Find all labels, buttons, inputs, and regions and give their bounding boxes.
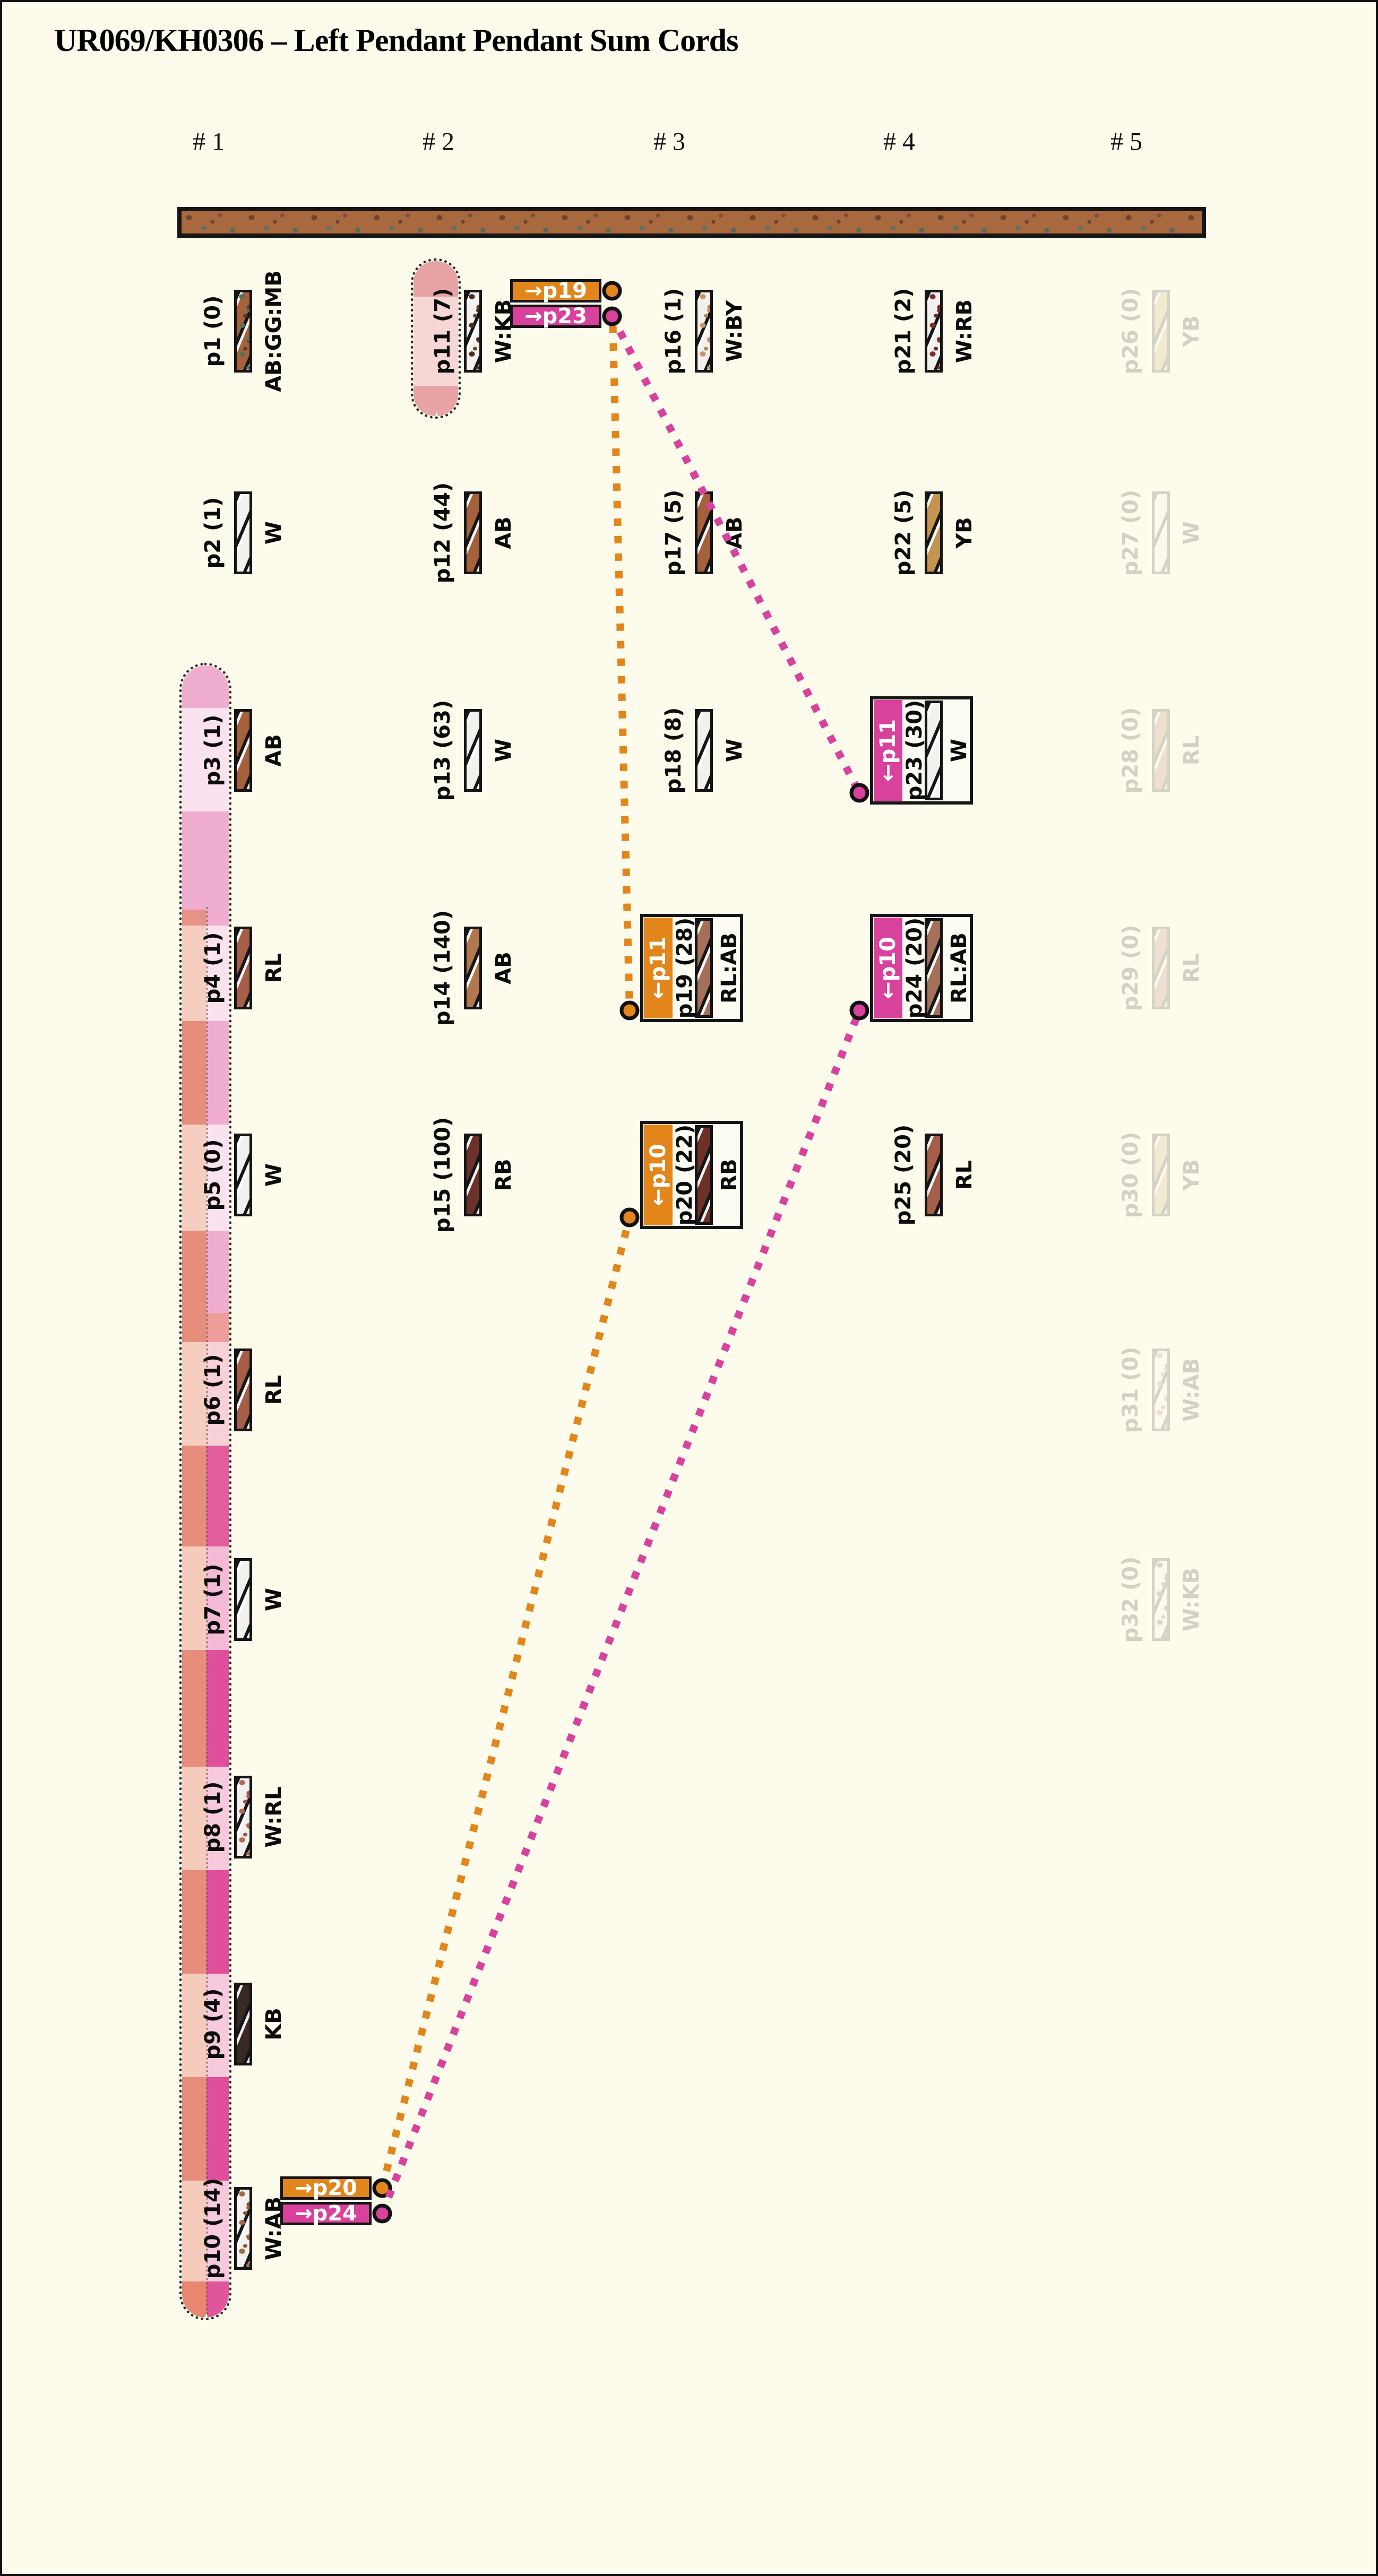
- pendant-color-code-p3: AB: [262, 665, 286, 835]
- pendant-cord-p9: [234, 1983, 252, 2065]
- incoming-arrow-label-p23: ←p11: [876, 692, 900, 809]
- pendant-cord-p18: [695, 709, 713, 792]
- pendant-label-p23: p23 (30): [902, 665, 927, 835]
- link-end-dot-p10-p20: [622, 1209, 638, 1225]
- pendant-cord-p31: [1152, 1348, 1170, 1431]
- pendant-color-code-p11: W:KB: [492, 246, 516, 416]
- pendant-cord-p1: [234, 290, 252, 373]
- pendant-label-p17: p17 (5): [661, 448, 686, 618]
- pendant-cord-p19: [695, 918, 713, 1018]
- column-header-5: # 5: [1110, 127, 1142, 157]
- pendant-label-p26: p26 (0): [1118, 246, 1143, 416]
- pendant-label-p22: p22 (5): [891, 448, 916, 618]
- primary-cord-bar: [177, 207, 1206, 238]
- pendant-cord-p14: [464, 927, 482, 1009]
- pendant-label-p18: p18 (8): [661, 665, 686, 835]
- pendant-label-p28: p28 (0): [1118, 665, 1143, 835]
- pendant-color-code-p12: AB: [492, 448, 516, 618]
- pendant-cord-p8: [234, 1776, 252, 1858]
- incoming-arrow-label-p20: ←p10: [646, 1117, 670, 1233]
- pendant-color-code-p21: W:RB: [952, 246, 977, 416]
- pendant-label-p5: p5 (0): [201, 1090, 225, 1260]
- outgoing-arrow-box-p11-p23: →p23: [510, 305, 601, 328]
- pendant-color-code-p15: RB: [492, 1090, 516, 1260]
- pendant-label-p9: p9 (4): [201, 1939, 225, 2109]
- pendant-color-code-p19: RL:AB: [717, 883, 742, 1053]
- pendant-color-code-p25: RL: [952, 1090, 977, 1260]
- pendant-cord-p3: [234, 709, 252, 792]
- pendant-cord-p28: [1152, 709, 1170, 792]
- pendant-cord-p15: [464, 1134, 482, 1216]
- incoming-arrow-strip-p24: ←p10: [874, 918, 902, 1018]
- pendant-color-code-p1: AB:GG:MB: [262, 246, 286, 416]
- pendant-label-p8: p8 (1): [201, 1732, 225, 1902]
- pendant-color-code-p29: RL: [1179, 883, 1204, 1053]
- pendant-cord-p20: [695, 1125, 713, 1225]
- pendant-label-p19: p19 (28): [673, 883, 697, 1053]
- pendant-label-p6: p6 (1): [201, 1305, 225, 1475]
- pendant-color-code-p10: W:AB: [262, 2143, 286, 2313]
- pendant-color-code-p16: W:BY: [722, 246, 747, 416]
- pendant-color-code-p5: W: [262, 1090, 286, 1260]
- pendant-color-code-p28: RL: [1179, 665, 1204, 835]
- pendant-color-code-p14: AB: [492, 883, 516, 1053]
- pendant-color-code-p13: W: [492, 665, 516, 835]
- column-header-2: # 2: [423, 127, 454, 157]
- pendant-color-code-p26: YB: [1179, 246, 1204, 416]
- pendant-label-p15: p15 (100): [430, 1090, 455, 1260]
- page-title: UR069/KH0306 – Left Pendant Pendant Sum …: [54, 22, 738, 59]
- incoming-arrow-label-p19: ←p11: [646, 910, 670, 1026]
- pendant-color-code-p9: KB: [262, 1939, 286, 2109]
- link-start-dot-p10-p20: [374, 2180, 390, 2196]
- pendant-cord-p30: [1152, 1134, 1170, 1216]
- pendant-color-code-p2: W: [262, 448, 286, 618]
- pendant-label-p29: p29 (0): [1118, 883, 1143, 1053]
- link-start-dot-p11-p23: [604, 308, 620, 324]
- pendant-label-p4: p4 (1): [201, 883, 225, 1053]
- pendant-label-p25: p25 (20): [891, 1090, 916, 1260]
- pendant-label-p2: p2 (1): [201, 448, 225, 618]
- pendant-cord-p26: [1152, 290, 1170, 373]
- pendant-color-code-p31: W:AB: [1179, 1305, 1204, 1475]
- sum-link-line-p10-p20: [382, 1217, 630, 2188]
- pendant-cord-p24: [925, 918, 943, 1018]
- pendant-cord-p5: [234, 1134, 252, 1216]
- pendant-color-code-p4: RL: [262, 883, 286, 1053]
- pendant-cord-p23: [925, 701, 943, 800]
- outgoing-arrow-box-p10-p20: →p20: [280, 2176, 372, 2200]
- pendant-color-code-p17: AB: [722, 448, 747, 618]
- pendant-label-p21: p21 (2): [891, 246, 916, 416]
- pendant-cord-p21: [925, 290, 943, 373]
- pendant-label-p31: p31 (0): [1118, 1305, 1143, 1475]
- pendant-color-code-p32: W:KB: [1179, 1515, 1204, 1684]
- khipu-diagram-page: UR069/KH0306 – Left Pendant Pendant Sum …: [0, 0, 1378, 2576]
- sum-link-line-p11-p19: [612, 291, 630, 1010]
- pendant-label-p3: p3 (1): [201, 665, 225, 835]
- pendant-color-code-p6: RL: [262, 1305, 286, 1475]
- incoming-arrow-strip-p20: ←p10: [644, 1125, 673, 1225]
- pendant-label-p13: p13 (63): [430, 665, 455, 835]
- pendant-cord-p25: [925, 1134, 943, 1216]
- pendant-cord-p11: [464, 290, 482, 373]
- pendant-cord-p29: [1152, 927, 1170, 1009]
- incoming-arrow-label-p24: ←p10: [876, 910, 900, 1026]
- column-header-3: # 3: [653, 127, 685, 157]
- pendant-label-p14: p14 (140): [430, 883, 455, 1053]
- pendant-cord-p6: [234, 1348, 252, 1431]
- pendant-color-code-p23: W: [947, 665, 971, 835]
- pendant-color-code-p27: W: [1179, 448, 1204, 618]
- column-header-1: # 1: [193, 127, 225, 157]
- pendant-label-p1: p1 (0): [201, 246, 225, 416]
- pendant-cord-p17: [695, 491, 713, 574]
- column-header-4: # 4: [883, 127, 915, 157]
- pendant-cord-p12: [464, 491, 482, 574]
- pendant-label-p24: p24 (20): [902, 883, 927, 1053]
- link-end-dot-p11-p19: [622, 1002, 638, 1018]
- pendant-label-p7: p7 (1): [201, 1515, 225, 1684]
- pendant-cord-p2: [234, 491, 252, 574]
- pendant-cord-p10: [234, 2187, 252, 2270]
- pendant-label-p32: p32 (0): [1118, 1515, 1143, 1684]
- pendant-cord-p22: [925, 491, 943, 574]
- link-start-dot-p10-p24: [374, 2206, 390, 2221]
- pendant-cord-p7: [234, 1558, 252, 1641]
- pendant-color-code-p22: YB: [952, 448, 977, 618]
- pendant-cord-p4: [234, 927, 252, 1009]
- pendant-color-code-p18: W: [722, 665, 747, 835]
- outgoing-arrow-box-p10-p24: →p24: [280, 2202, 372, 2225]
- incoming-arrow-strip-p19: ←p11: [644, 918, 673, 1018]
- pendant-label-p10: p10 (14): [201, 2143, 225, 2313]
- pendant-color-code-p8: W:RL: [262, 1732, 286, 1902]
- pendant-color-code-p7: W: [262, 1515, 286, 1684]
- pendant-cord-p13: [464, 709, 482, 792]
- outgoing-arrow-box-p11-p19: →p19: [510, 279, 601, 302]
- pendant-label-p16: p16 (1): [661, 246, 686, 416]
- pendant-label-p12: p12 (44): [430, 448, 455, 618]
- pendant-color-code-p30: YB: [1179, 1090, 1204, 1260]
- pendant-label-p11: p11 (7): [430, 246, 455, 416]
- pendant-label-p20: p20 (22): [673, 1090, 697, 1260]
- pendant-color-code-p20: RB: [717, 1090, 742, 1260]
- pendant-cord-p32: [1152, 1558, 1170, 1641]
- pendant-label-p27: p27 (0): [1118, 448, 1143, 618]
- link-end-dot-p10-p24: [851, 1002, 867, 1018]
- link-start-dot-p11-p19: [604, 283, 620, 299]
- link-end-dot-p11-p23: [851, 785, 867, 801]
- pendant-cord-p16: [695, 290, 713, 373]
- pendant-label-p30: p30 (0): [1118, 1090, 1143, 1260]
- pendant-cord-p27: [1152, 491, 1170, 574]
- incoming-arrow-strip-p23: ←p11: [874, 700, 902, 801]
- pendant-color-code-p24: RL:AB: [947, 883, 971, 1053]
